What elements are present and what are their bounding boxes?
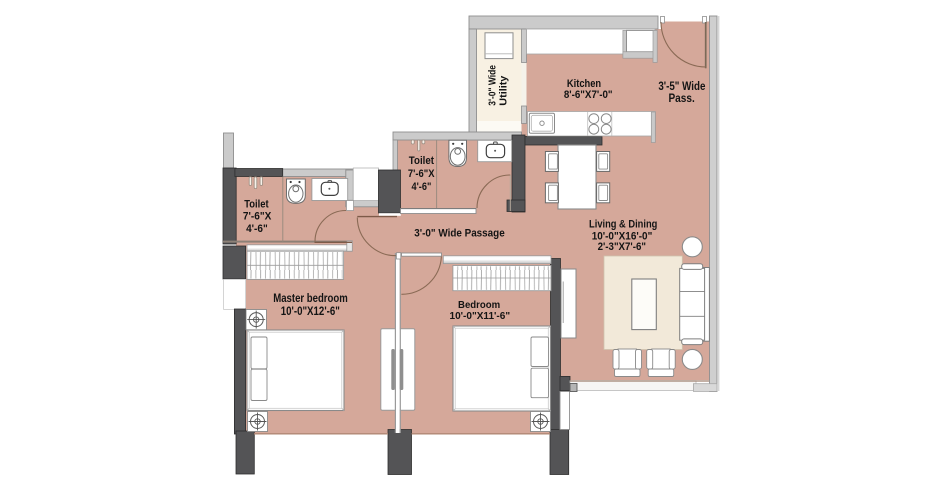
svg-text:10'-0"X12'-6": 10'-0"X12'-6"	[281, 304, 340, 318]
svg-text:4'-6": 4'-6"	[412, 181, 432, 193]
svg-text:Living & Dining: Living & Dining	[589, 218, 657, 230]
svg-text:2'-3"X7'-6": 2'-3"X7'-6"	[598, 241, 646, 253]
svg-text:Master bedroom: Master bedroom	[273, 291, 348, 305]
svg-text:Utility: Utility	[498, 76, 510, 106]
svg-text:3'-0" Wide Passage: 3'-0" Wide Passage	[414, 227, 504, 239]
svg-text:7'-6"X: 7'-6"X	[243, 211, 272, 223]
svg-text:10'-0"X11'-6": 10'-0"X11'-6"	[450, 311, 511, 322]
svg-text:Pass.: Pass.	[668, 91, 694, 105]
svg-text:4'-6": 4'-6"	[246, 223, 268, 235]
svg-text:8'-6"X7'-0": 8'-6"X7'-0"	[564, 89, 613, 101]
svg-text:Bedroom: Bedroom	[458, 300, 500, 311]
svg-text:7'-6"X: 7'-6"X	[408, 168, 435, 180]
svg-text:Kitchen: Kitchen	[567, 78, 601, 90]
svg-text:Toilet: Toilet	[409, 155, 434, 167]
svg-text:Toilet: Toilet	[244, 199, 269, 211]
